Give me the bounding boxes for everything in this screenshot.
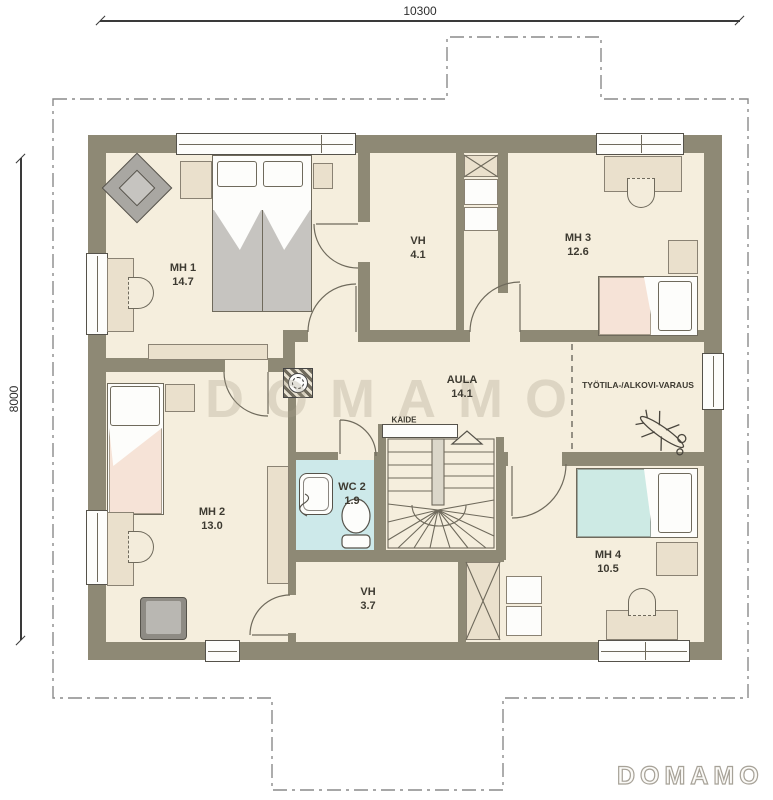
room-label-wc2: WC 21.9: [338, 480, 366, 508]
dresser: [464, 207, 498, 231]
pillow: [658, 473, 692, 533]
window: [176, 133, 356, 155]
room-label-mh3: MH 312.6: [565, 231, 591, 259]
window: [205, 640, 240, 662]
nightstand: [668, 240, 698, 274]
wall-mh1-vh: [358, 153, 370, 222]
room-label-mh4: MH 410.5: [595, 548, 621, 576]
room-label-mh1: MH 114.7: [170, 261, 196, 289]
wall-vh-closet: [456, 153, 464, 330]
wall-wc-top: [296, 452, 338, 460]
dresser: [464, 179, 498, 205]
floor-plan-canvas: 10300 8000: [0, 0, 773, 800]
armchair-seat: [146, 601, 181, 634]
nightstand: [656, 542, 698, 576]
window: [86, 510, 108, 585]
nightstand: [313, 163, 333, 189]
dresser: [506, 576, 542, 604]
dimension-width-line: [100, 20, 740, 22]
room-label-vh-upper: VH4.1: [410, 234, 425, 262]
stairs-railing: [382, 424, 458, 438]
window: [596, 133, 684, 155]
pillow: [217, 161, 257, 187]
nightstand: [165, 384, 195, 412]
dimension-height-label: 8000: [7, 386, 21, 413]
wall-stairs-left: [378, 424, 386, 550]
stairs-railing-label: KAIDE: [392, 416, 417, 425]
room-label-mh2: MH 213.0: [199, 505, 225, 533]
pillow: [658, 281, 692, 331]
room-label-tyotila: TYÖTILA-/ALKOVI-VARAUS: [582, 378, 694, 392]
dimension-width-label: 10300: [403, 4, 436, 18]
wall-mh4-top: [562, 452, 704, 466]
shelf: [148, 344, 268, 360]
brand-logo: DOMAMO: [617, 762, 764, 791]
bed-mattress: [577, 469, 651, 537]
wall-mh3-left: [498, 153, 508, 293]
nightstand: [180, 161, 212, 199]
bed-mattress: [599, 277, 651, 335]
dresser: [506, 606, 542, 636]
wall-aula-top: [358, 330, 470, 342]
wardrobe: [464, 155, 498, 177]
wardrobe: [466, 562, 500, 640]
wall-mh4-top: [498, 452, 508, 466]
wall-vh2-right: [458, 562, 466, 642]
sink: [299, 473, 333, 515]
pillow: [263, 161, 303, 187]
pillow: [110, 386, 160, 426]
window: [702, 353, 724, 410]
wall-mh2-right: [288, 372, 296, 595]
dimension-height-line: [20, 158, 22, 640]
cabinet: [267, 466, 289, 584]
wall-mh1-vh: [358, 262, 370, 337]
window: [598, 640, 690, 662]
desk-chair: [627, 178, 655, 208]
desk-chair: [628, 588, 656, 616]
window: [86, 253, 108, 335]
wall-south-band: [296, 550, 504, 562]
wall-mh4-left: [498, 466, 506, 560]
wall-mh1-mh2: [106, 358, 225, 372]
room-label-vh-lower: VH3.7: [360, 585, 375, 613]
wall-mh2-right: [288, 633, 296, 642]
chimney: [283, 368, 313, 398]
room-label-aula: AULA14.1: [447, 373, 478, 401]
